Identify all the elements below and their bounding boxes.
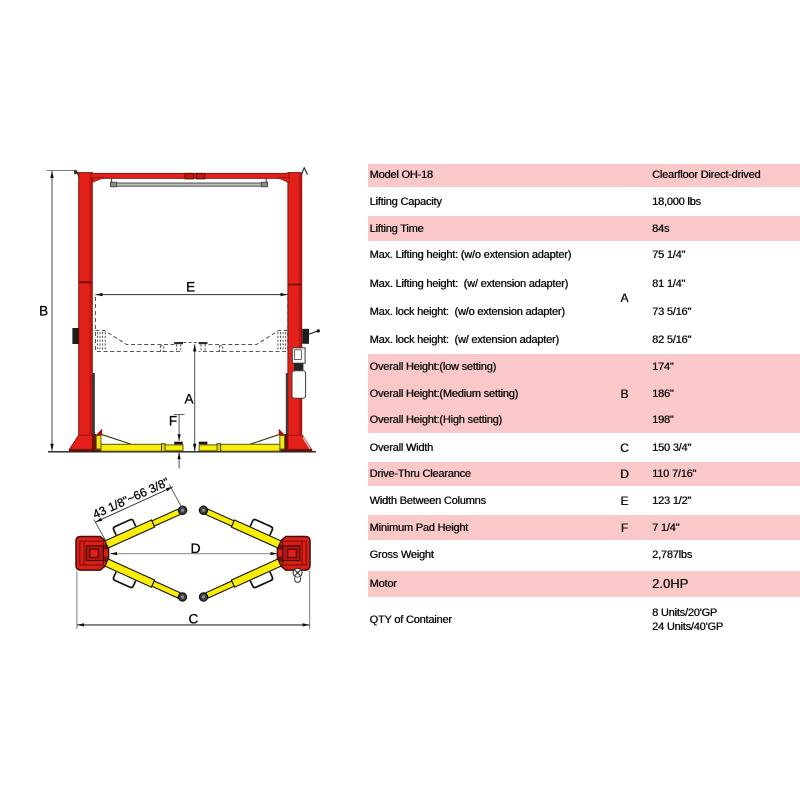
svg-text:B: B	[39, 304, 48, 319]
svg-text:C: C	[189, 612, 199, 627]
svg-text:43 1/8"~66 3/8": 43 1/8"~66 3/8"	[91, 475, 172, 522]
svg-text:F: F	[169, 414, 177, 429]
svg-text:A: A	[184, 392, 193, 407]
svg-text:E: E	[186, 280, 195, 295]
svg-text:D: D	[190, 540, 200, 556]
